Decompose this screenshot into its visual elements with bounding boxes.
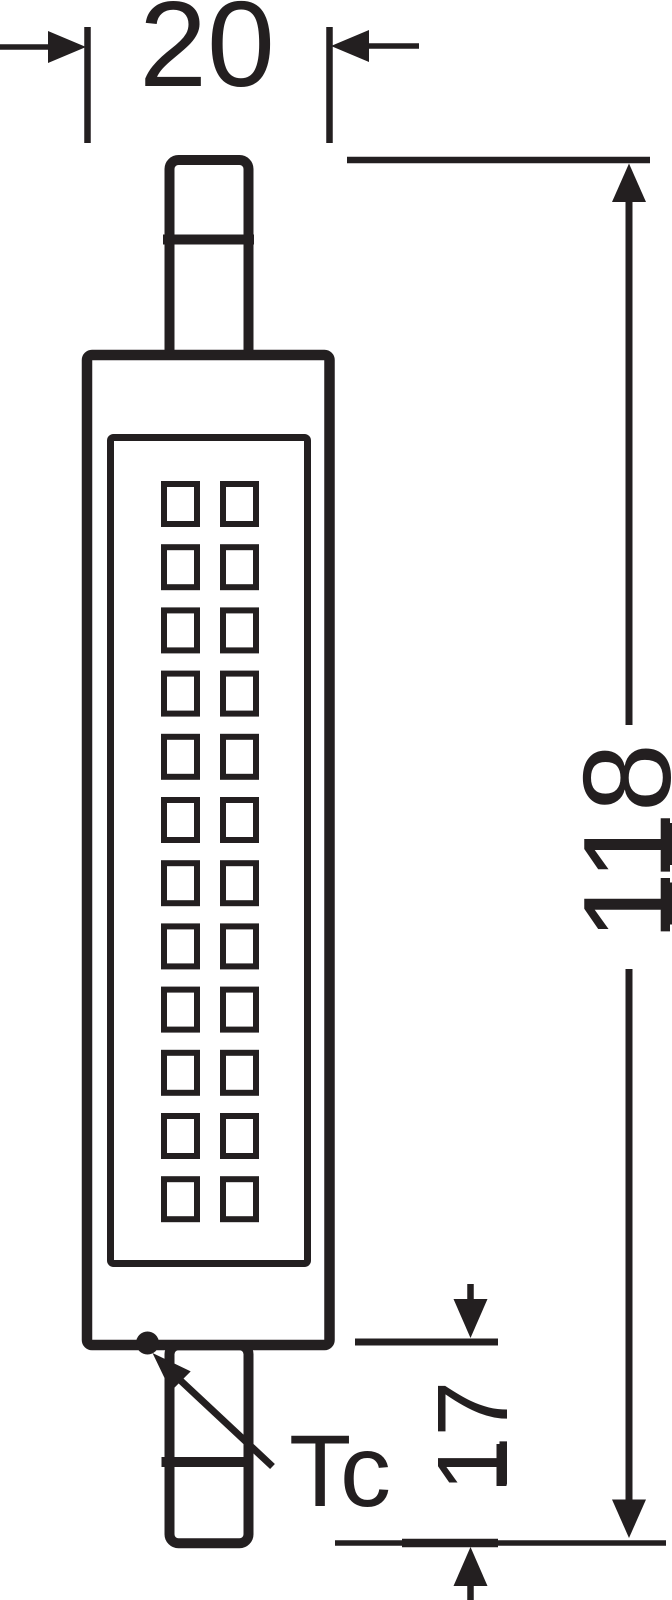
svg-text:17: 17 <box>417 1381 529 1492</box>
svg-text:20: 20 <box>139 0 275 112</box>
svg-text:118: 118 <box>559 743 672 941</box>
svg-text:Tc: Tc <box>289 1414 391 1528</box>
